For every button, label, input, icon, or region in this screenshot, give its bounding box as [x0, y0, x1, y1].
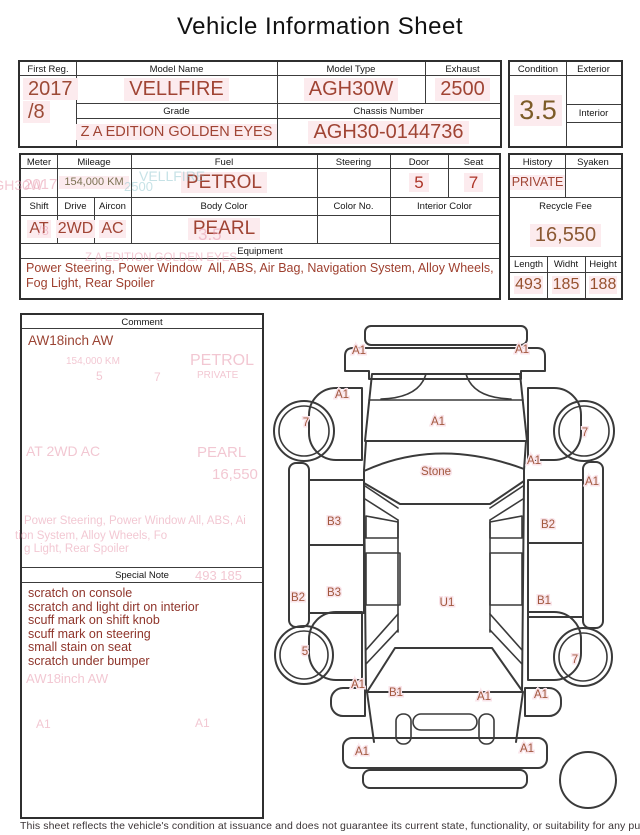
grid-line [22, 567, 262, 568]
rear-window [367, 648, 523, 692]
grid-line [21, 258, 499, 259]
vehicle-condition-diagram: A1 A1 A1 7 7 A1 Stone A1 A1 B3 B2 B2 B3 … [270, 315, 635, 815]
diagram-label: A1 [351, 679, 365, 691]
equipment-value: Power Steering, Power Window All, ABS, A… [26, 261, 494, 291]
equipment-label: Equipment [21, 246, 499, 257]
history-value: PRIVATE [510, 168, 565, 197]
recycle-fee-value: 16,550 [510, 215, 621, 255]
diagram-label: Stone [421, 466, 451, 478]
width-label: Widht [547, 259, 585, 270]
condition-label: Condition [510, 64, 566, 75]
diagram-label: A1 [335, 389, 349, 401]
info-table: First Reg. Model Name Model Type Exhaust… [18, 60, 502, 148]
steering-label: Steering [317, 157, 390, 168]
hood [365, 374, 527, 441]
page-title: Vehicle Information Sheet [0, 13, 640, 41]
grid-line [76, 103, 500, 104]
front-left-wheel [274, 401, 334, 461]
fuel-value: PETROL [131, 168, 317, 197]
interior-label: Interior [566, 108, 621, 119]
first-reg-label: First Reg. [20, 64, 76, 75]
recycle-fee-label: Recycle Fee [510, 201, 621, 212]
special-note-item: scuff mark on shift knob [28, 614, 258, 628]
aircon-value: AC [94, 215, 131, 243]
diagram-label: U1 [440, 597, 455, 609]
vehicle-information-sheet: Vehicle Information Sheet First Reg. Mod… [0, 0, 640, 835]
door-label: Door [390, 157, 448, 168]
left-side-window [366, 553, 400, 605]
rear-lower-strip [363, 770, 527, 788]
diagram-label: A1 [431, 416, 445, 428]
grid-line [21, 243, 499, 244]
width-value: 185 [547, 272, 585, 298]
comment-header: Comment [22, 317, 262, 328]
model-type-label: Model Type [277, 64, 425, 75]
grid-line [510, 197, 621, 198]
disclaimer-text: This sheet reflects the vehicle's condit… [20, 820, 624, 832]
model-type-value: AGH30W [277, 75, 425, 103]
left-tail-light [396, 714, 411, 744]
rear-right-fender [528, 612, 581, 680]
rear-right-wheel [554, 628, 612, 686]
diagram-label: 5 [302, 646, 308, 658]
diagram-label: B2 [291, 592, 305, 604]
height-label: Height [585, 259, 621, 270]
diagram-label: A1 [534, 689, 548, 701]
windshield [364, 453, 524, 504]
diagram-label: B3 [327, 516, 341, 528]
special-note-item: small stain on seat [28, 641, 258, 655]
right-headlight [466, 374, 511, 399]
diagram-label: A1 [477, 691, 491, 703]
special-note-item: scratch under bumper [28, 655, 258, 669]
first-reg-value: 2017 /8 [23, 78, 76, 124]
chassis-value: AGH30-0144736 [277, 118, 500, 146]
comment-text: AW18inch AW [28, 333, 113, 348]
diagram-label: 7 [582, 427, 588, 439]
license-recess [413, 714, 477, 730]
damage-labels: A1 A1 A1 7 7 A1 Stone A1 A1 B3 B2 B2 B3 … [291, 344, 599, 758]
grid-line [22, 582, 262, 583]
grid-line [510, 256, 621, 257]
aircon-label: Aircon [94, 201, 131, 212]
door-value: 5 [390, 168, 448, 197]
diagram-label: A1 [352, 345, 366, 357]
diagram-label: B1 [389, 687, 403, 699]
meter-label: Meter [21, 157, 57, 168]
seat-label: Seat [448, 157, 499, 168]
condition-score: 3.5 [510, 75, 566, 146]
car-outline [274, 326, 616, 808]
front-grille [365, 326, 527, 345]
grade-label: Grade [76, 106, 277, 117]
special-note-item: scratch and light dirt on interior [28, 601, 258, 615]
diagram-label: A1 [520, 743, 534, 755]
condition-box: Condition Exterior 3.5 Interior [508, 60, 623, 148]
length-value: 493 [510, 272, 547, 298]
diagram-label: B3 [327, 587, 341, 599]
diagram-label: A1 [527, 455, 541, 467]
diagram-label: A1 [515, 344, 529, 356]
chassis-label: Chassis Number [277, 106, 500, 117]
exhaust-value: 2500 [425, 75, 500, 103]
grid-line [21, 197, 499, 198]
diagram-label: B1 [537, 595, 551, 607]
mileage-value: 154,000 KM [57, 168, 131, 197]
body-color-value: PEARL [131, 215, 317, 243]
seat-value: 7 [448, 168, 499, 197]
interior-color-label: Interior Color [390, 201, 499, 212]
comment-note-box: Comment AW18inch AW Special Note scratch… [20, 313, 264, 819]
diagram-label: 7 [572, 654, 578, 666]
grade-value: Z A EDITION GOLDEN EYES [76, 118, 277, 146]
shift-label: Shift [21, 201, 57, 212]
grid-line [566, 122, 621, 123]
spec-table: Meter Mileage Fuel Steering Door Seat 15… [19, 153, 501, 300]
special-note-item: scuff mark on steering [28, 628, 258, 642]
model-name-value: VELLFIRE [76, 75, 277, 103]
grid-line [22, 328, 262, 329]
diagram-label: A1 [585, 476, 599, 488]
drive-value: 2WD [57, 215, 94, 243]
exterior-label: Exterior [566, 64, 621, 75]
special-note-header: Special Note [22, 570, 262, 581]
diagram-label: B2 [541, 519, 555, 531]
special-note-item: scratch on console [28, 587, 258, 601]
height-value: 188 [585, 272, 621, 298]
color-no-label: Color No. [317, 201, 390, 212]
body-color-label: Body Color [131, 201, 317, 212]
history-box: History Syaken PRIVATE Recycle Fee 16,55… [508, 153, 623, 300]
spare-tire [560, 752, 616, 808]
shift-value: AT [21, 215, 57, 243]
right-side-window [490, 553, 522, 605]
left-headlight [381, 374, 426, 399]
grid-line [566, 104, 621, 105]
syaken-label: Syaken [565, 157, 621, 168]
fuel-label: Fuel [131, 157, 317, 168]
history-label: History [510, 157, 565, 168]
mileage-label: Mileage [57, 157, 131, 168]
special-note-list: scratch on console scratch and light dir… [28, 587, 258, 668]
rear-left-corner [331, 688, 365, 716]
diagram-label: A1 [355, 746, 369, 758]
length-label: Length [510, 259, 547, 270]
right-tail-light [479, 714, 494, 744]
exhaust-label: Exhaust [425, 64, 500, 75]
diagram-label: 7 [303, 417, 309, 429]
rear-left-fender [309, 612, 362, 680]
drive-label: Drive [57, 201, 94, 212]
model-name-label: Model Name [76, 64, 277, 75]
